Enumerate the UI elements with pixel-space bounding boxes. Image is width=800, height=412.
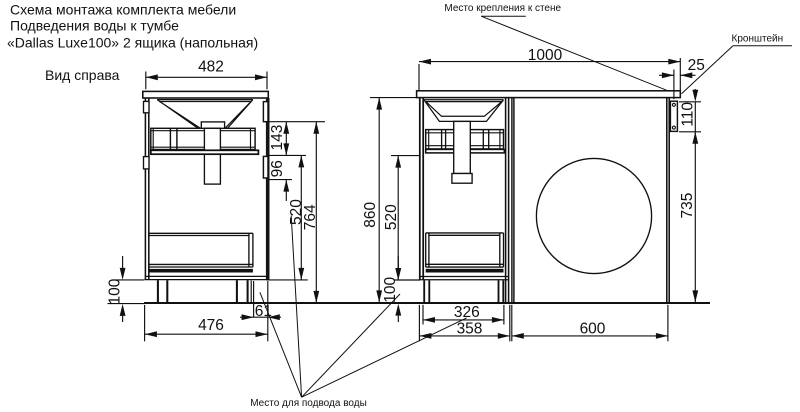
svg-text:520: 520 bbox=[383, 204, 400, 230]
svg-text:358: 358 bbox=[457, 321, 483, 338]
svg-text:600: 600 bbox=[580, 321, 606, 338]
svg-text:100: 100 bbox=[106, 278, 123, 304]
svg-text:Место для подвода воды: Место для подвода воды bbox=[250, 398, 367, 409]
svg-text:326: 326 bbox=[454, 304, 480, 321]
svg-text:143: 143 bbox=[269, 125, 286, 151]
svg-text:25: 25 bbox=[688, 57, 705, 74]
svg-text:Кронштейн: Кронштейн bbox=[732, 34, 784, 45]
svg-text:96: 96 bbox=[269, 160, 286, 177]
svg-text:1000: 1000 bbox=[528, 47, 563, 64]
svg-text:476: 476 bbox=[198, 317, 224, 334]
svg-text:Место крепления к стене: Место крепления к стене bbox=[444, 3, 561, 14]
svg-text:100: 100 bbox=[382, 276, 399, 302]
svg-text:Вид справа: Вид справа bbox=[45, 67, 120, 83]
svg-text:860: 860 bbox=[362, 201, 379, 227]
svg-text:110: 110 bbox=[679, 102, 696, 127]
svg-text:735: 735 bbox=[679, 193, 696, 219]
svg-text:764: 764 bbox=[302, 204, 319, 230]
svg-text:Схема монтажа комплекта мебели: Схема монтажа комплекта мебели bbox=[10, 2, 236, 18]
svg-text:Подведения воды к тумбе: Подведения воды к тумбе bbox=[10, 18, 179, 34]
svg-text:«Dallas Luxe100» 2 ящика (напо: «Dallas Luxe100» 2 ящика (напольная) bbox=[7, 35, 258, 51]
svg-text:482: 482 bbox=[198, 58, 224, 75]
